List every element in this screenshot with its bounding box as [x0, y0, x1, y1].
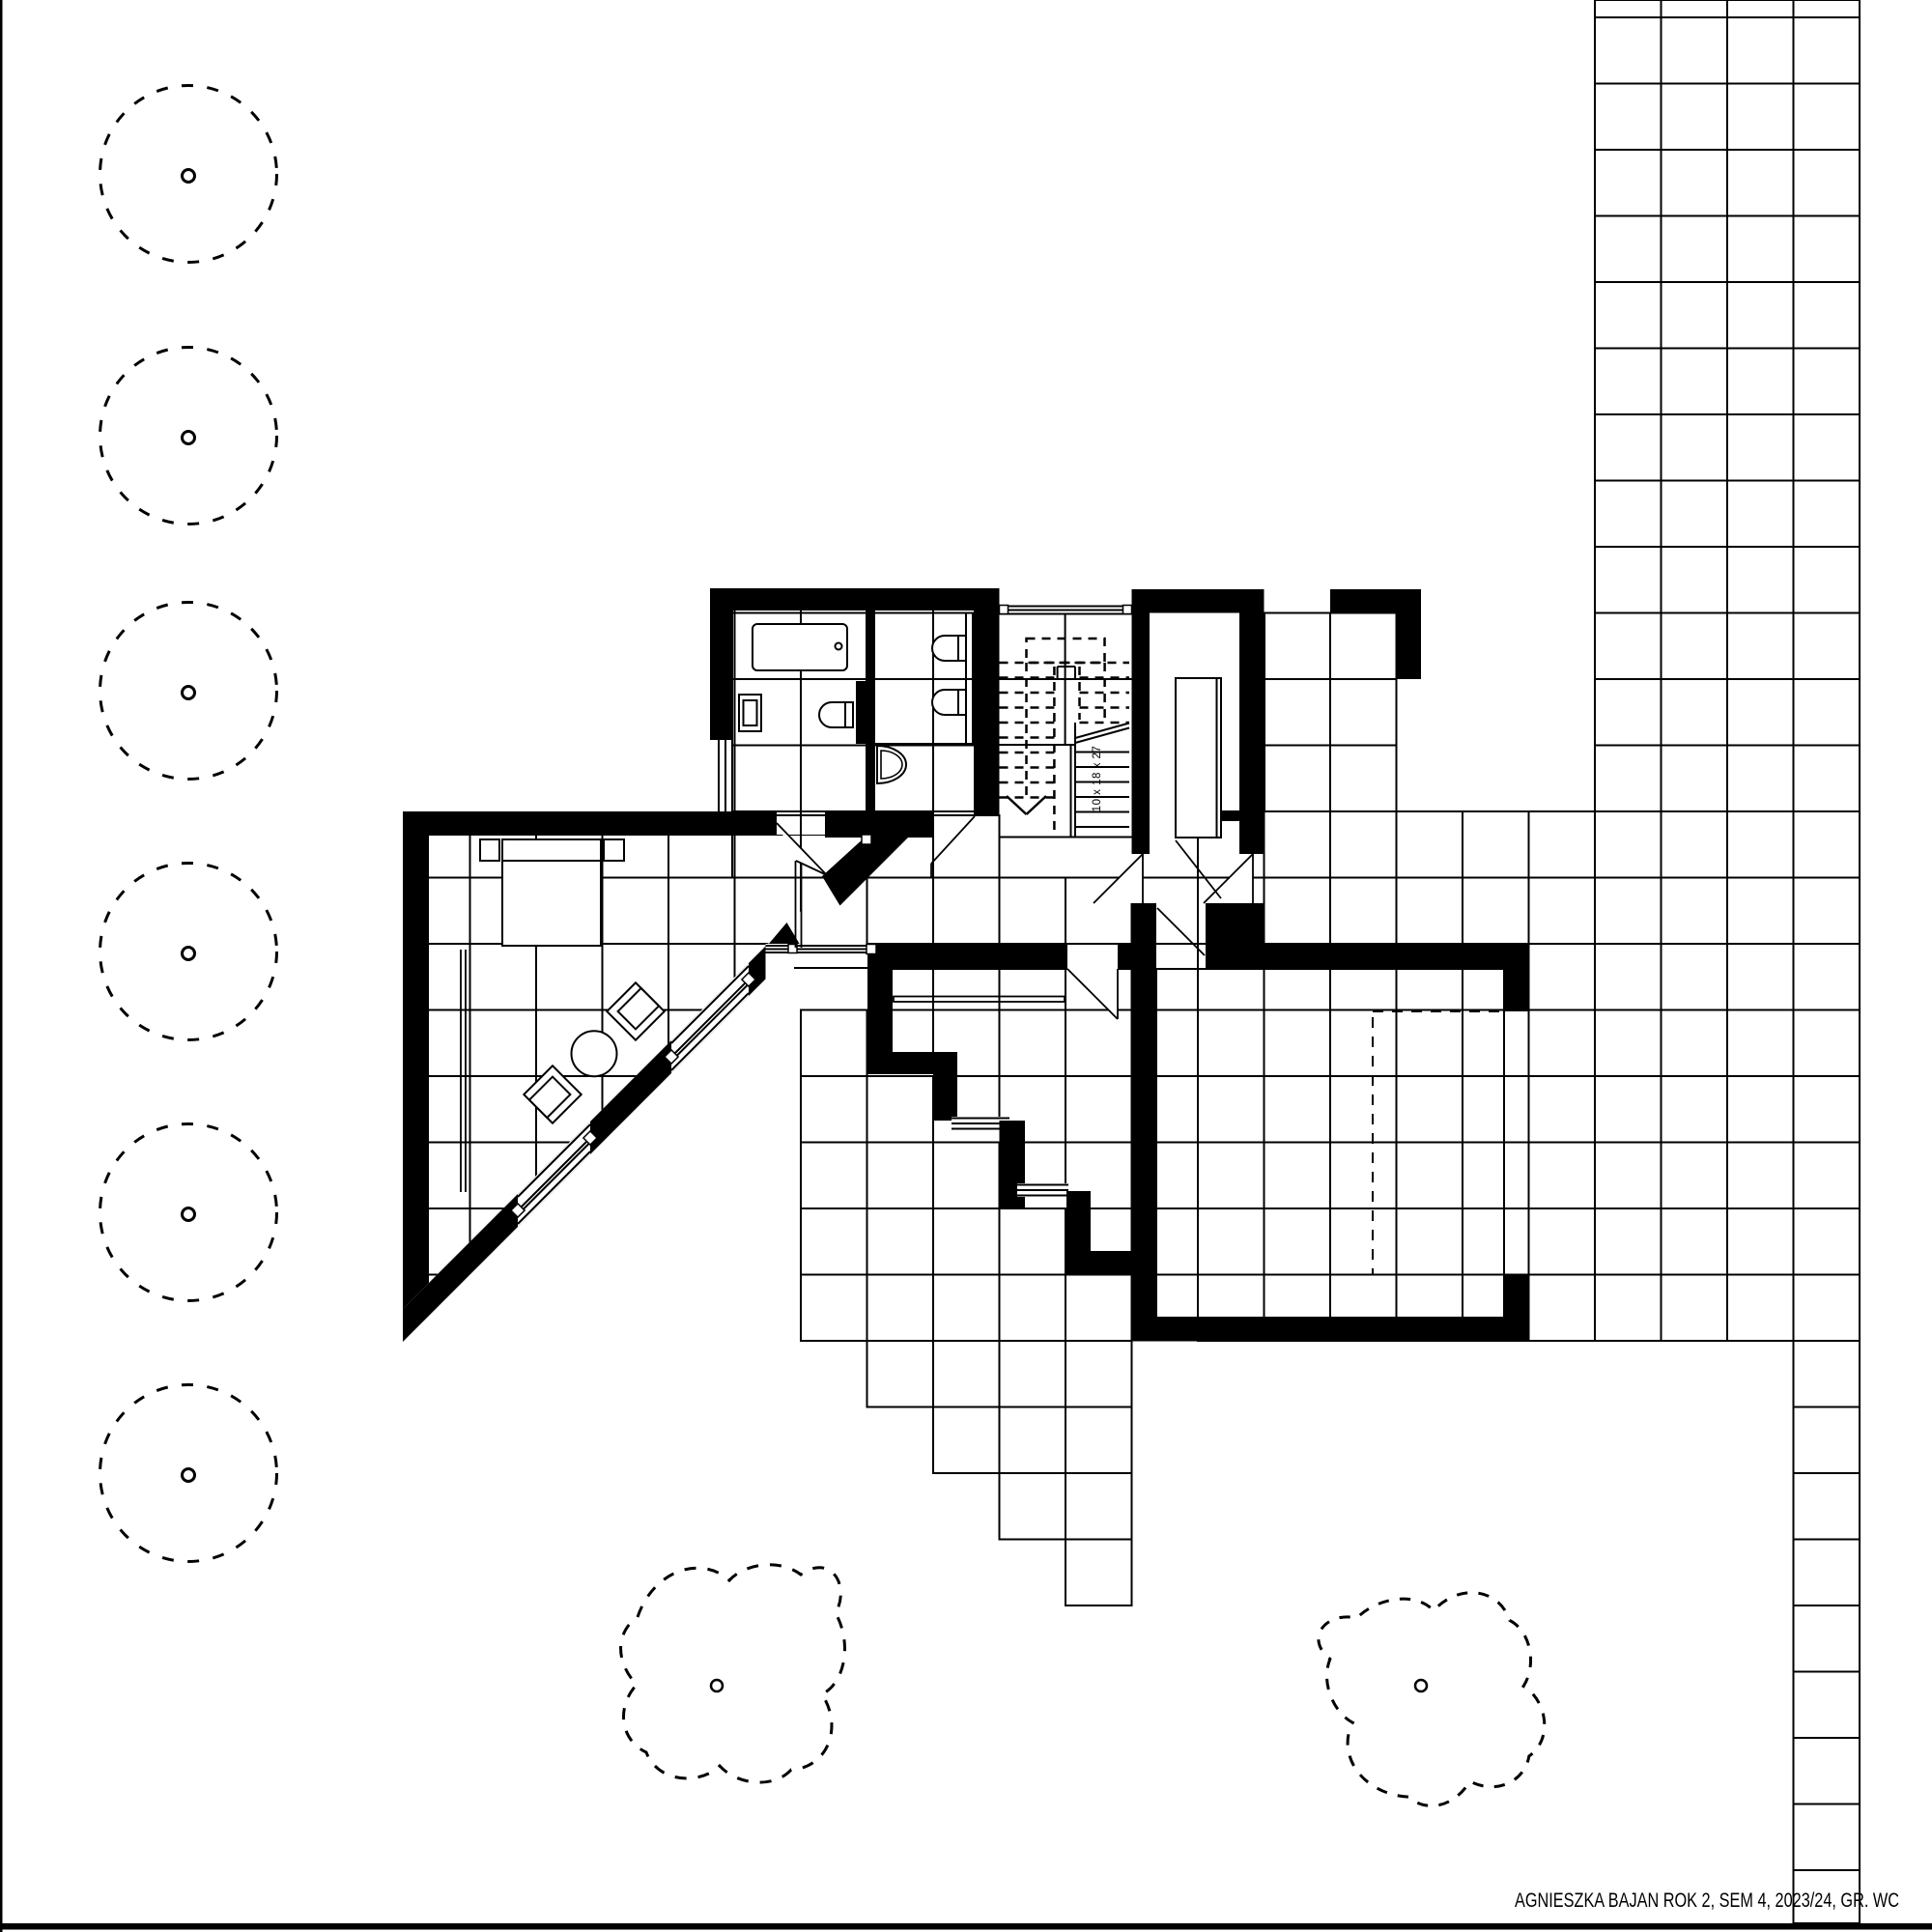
svg-text:10 x 18 x 27: 10 x 18 x 27	[1092, 746, 1103, 812]
svg-text:AGNIESZKA BAJAN ROK 2, SEM 4,: AGNIESZKA BAJAN ROK 2, SEM 4, 2023/24, G…	[1515, 1889, 1899, 1912]
